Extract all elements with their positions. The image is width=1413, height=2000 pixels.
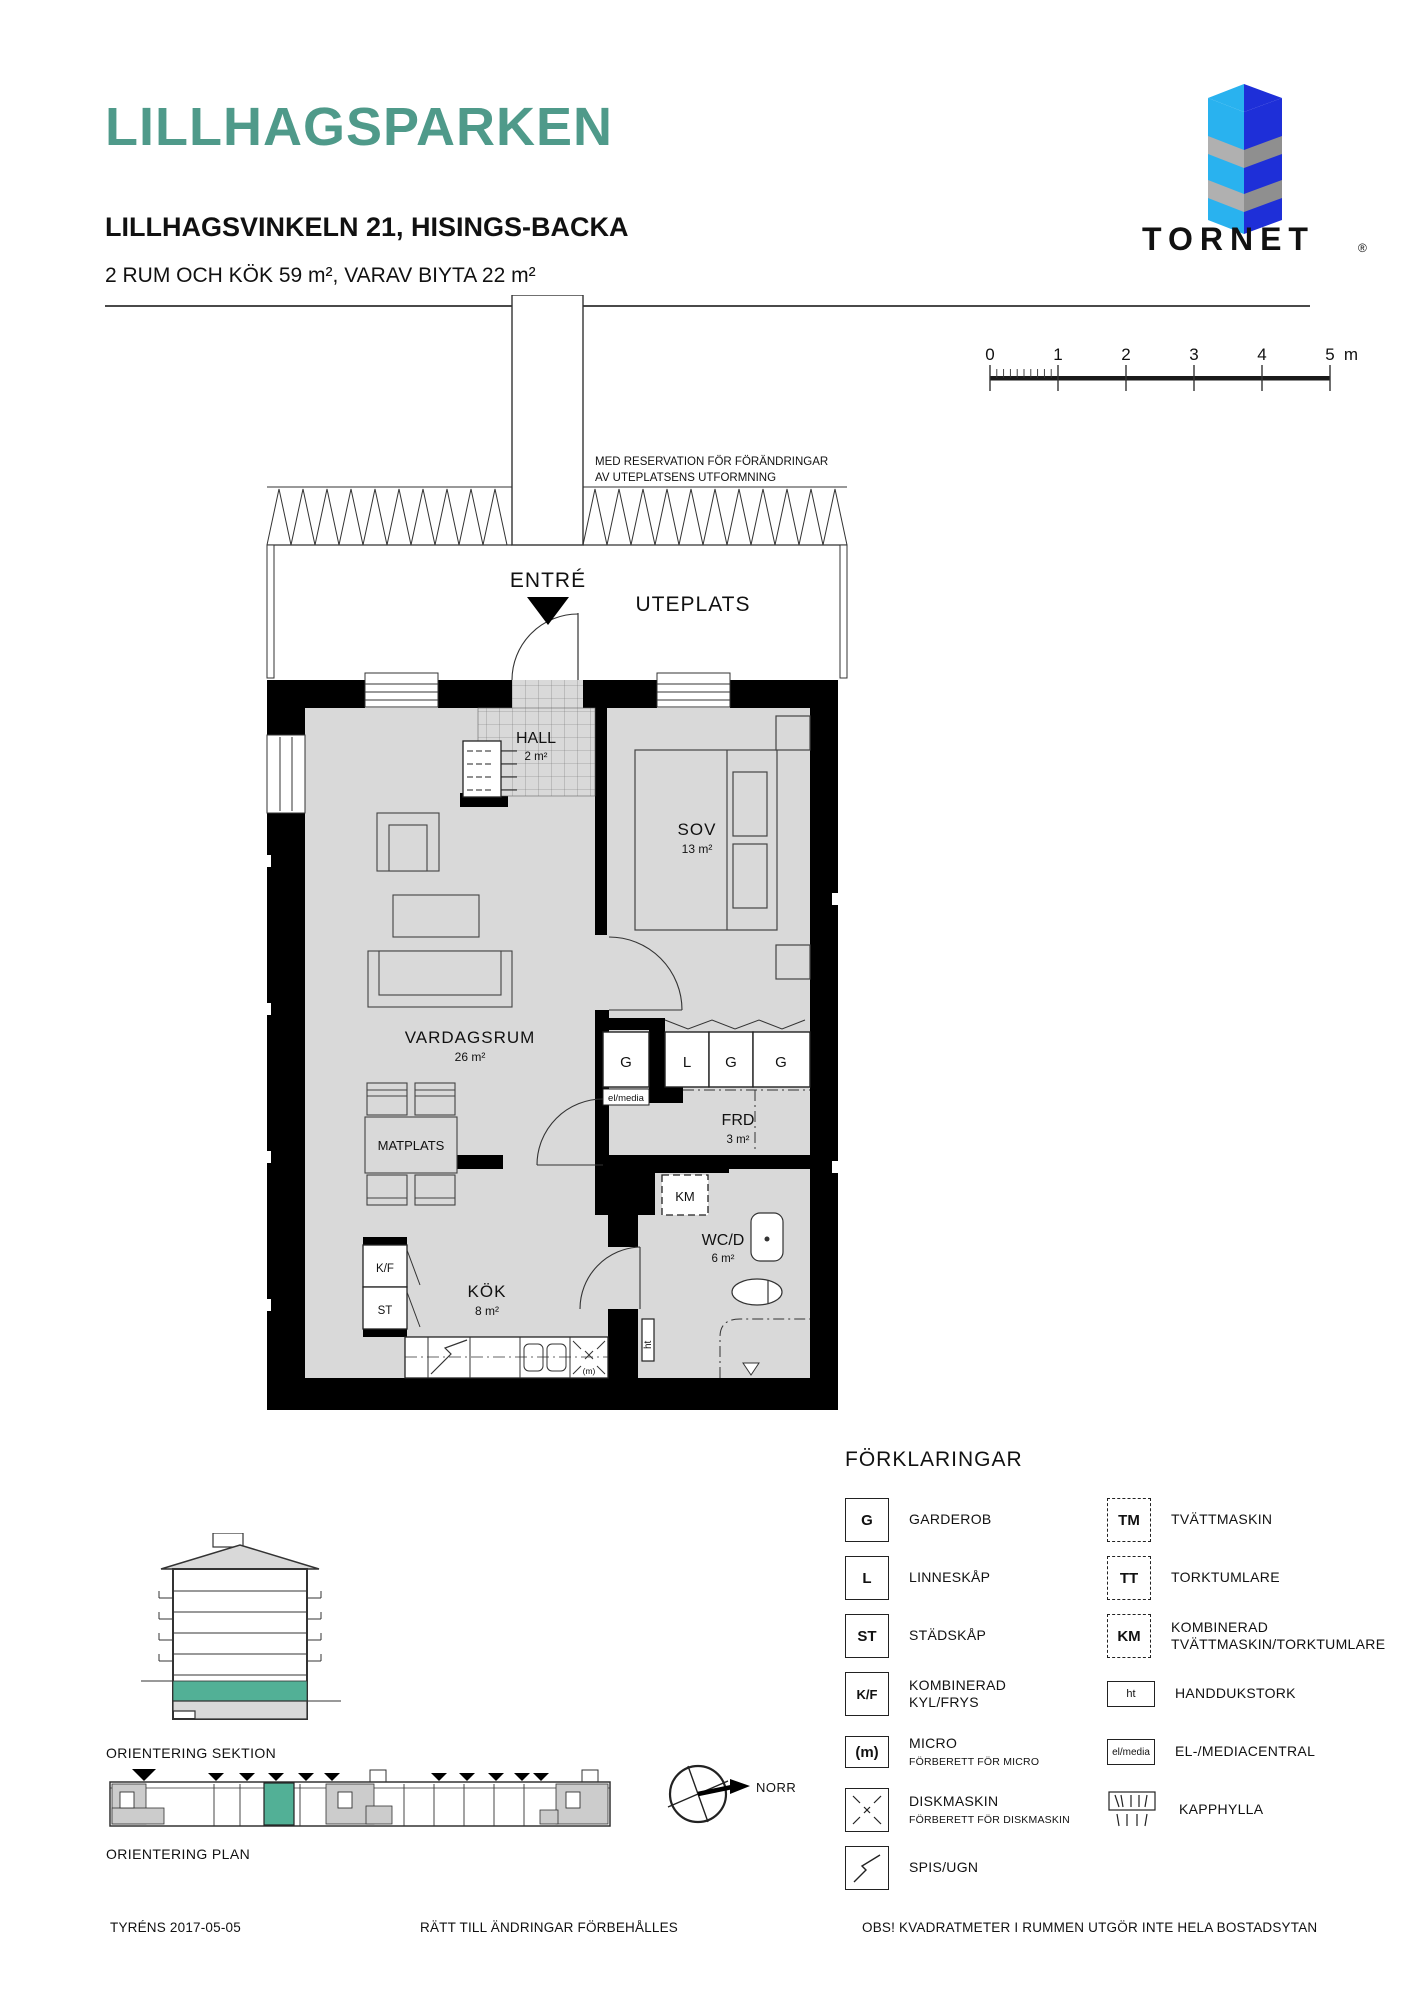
svg-text:4: 4 [1257, 345, 1266, 364]
apartment-summary: 2 RUM OCH KÖK 59 m², VARAV BIYTA 22 m² [105, 264, 536, 288]
uteplats-area [267, 295, 847, 680]
matplats-label: MATPLATS [378, 1138, 445, 1153]
chair [367, 1175, 407, 1205]
legend-right-column: TM TVÄTTMASKIN TT TORKTUMLARE KM KOMBINE… [1107, 1498, 1343, 1890]
handdukstork-symbol: ht [1107, 1681, 1155, 1707]
chair [415, 1175, 455, 1205]
reservation-note-line2: AV UTEPLATSENS UTFORMNING [595, 472, 776, 484]
entre-arrow-icon [527, 597, 569, 625]
vardagsrum-label: VARDAGSRUM [405, 1028, 536, 1047]
scale-tick-labels: 0 1 2 3 4 5 m [985, 345, 1358, 364]
legend-left-column: G GARDEROB L LINNESKÅP ST STÄDSKÅP K/F K… [845, 1498, 1081, 1890]
legend-item-kapphylla: KAPPHYLLA [1107, 1788, 1343, 1832]
registered-mark: ® [1358, 241, 1367, 254]
hall-label: HALL [516, 730, 556, 747]
footer-note: OBS! KVADRATMETER I RUMMEN UTGÖR INTE HE… [862, 1920, 1317, 1935]
window-vardagsrum-left [267, 735, 305, 813]
svg-text:0: 0 [985, 345, 994, 364]
bedside-table [776, 945, 810, 979]
orientation-plan-diagram [104, 1768, 624, 1834]
torktumlare-symbol: TT [1107, 1556, 1151, 1600]
hedge-right [583, 489, 847, 545]
sink-icon [751, 1213, 783, 1261]
legend-item-garderob: G GARDEROB [845, 1498, 1081, 1542]
highlighted-apartment [264, 1783, 294, 1825]
wcd-area: 6 m² [712, 1253, 735, 1265]
garderob-label: G [775, 1054, 787, 1071]
north-label: NORR [756, 1780, 796, 1795]
scale-unit: m [1344, 345, 1358, 364]
frd-area: 3 m² [727, 1134, 750, 1146]
legend-item-spis: SPIS/UGN [845, 1846, 1081, 1890]
sink-basin [547, 1344, 566, 1371]
legend: FÖRKLARINGAR G GARDEROB L LINNESKÅP ST S… [845, 1448, 1345, 1890]
km-appliance: KM [662, 1175, 708, 1215]
diskmaskin-icon [845, 1788, 889, 1832]
elmedia-symbol: el/media [1107, 1739, 1155, 1765]
legend-item-torktumlare: TT TORKTUMLARE [1107, 1556, 1343, 1600]
yard-fence-right [840, 545, 847, 678]
footer-disclaimer: RÄTT TILL ÄNDRINGAR FÖRBEHÅLLES [420, 1920, 678, 1935]
floor-plan: MED RESERVATION FÖR FÖRÄNDRINGAR AV UTEP… [265, 295, 855, 1420]
svg-text:2: 2 [1121, 345, 1130, 364]
legend-item-tvattmaskin: TM TVÄTTMASKIN [1107, 1498, 1343, 1542]
svg-text:3: 3 [1189, 345, 1198, 364]
ht-label: ht [643, 1340, 654, 1349]
uteplats-label: UTEPLATS [636, 593, 751, 616]
km-label: KM [675, 1189, 695, 1204]
legend-item-handdukstork: ht HANDDUKSTORK [1107, 1672, 1343, 1716]
kombimaskin-symbol: KM [1107, 1614, 1151, 1658]
legend-item-kombimaskin: KM KOMBINERAD TVÄTTMASKIN/TORKTUMLARE [1107, 1614, 1343, 1658]
north-arrow: NORR [660, 1752, 840, 1838]
coffee-table [393, 895, 479, 937]
legend-title: FÖRKLARINGAR [845, 1448, 1345, 1472]
hedge-left [267, 489, 507, 545]
kok-label: KÖK [468, 1282, 507, 1301]
entre-label: ENTRÉ [510, 569, 586, 592]
window-vardagsrum-top [365, 673, 438, 707]
orientation-section-diagram [135, 1533, 345, 1729]
orientation-section-label: ORIENTERING SEKTION [106, 1745, 276, 1761]
linneskap-label: L [683, 1054, 691, 1071]
wcd-label: WC/D [702, 1232, 745, 1249]
bedside-table [776, 716, 810, 750]
entry-door-swing [512, 614, 578, 680]
tornet-wordmark: TORNET [1142, 221, 1315, 254]
legend-item-elmedia: el/media EL-/MEDIACENTRAL [1107, 1730, 1343, 1774]
north-arrowhead [730, 1779, 750, 1794]
tornet-logo: TORNET ® [1140, 84, 1375, 254]
svg-text:1: 1 [1053, 345, 1062, 364]
kylfrys-symbol: K/F [845, 1672, 889, 1716]
kf-label: K/F [376, 1263, 394, 1275]
sov-label: SOV [678, 820, 717, 839]
footer-date: TYRÉNS 2017-05-05 [110, 1920, 241, 1935]
sink-basin [524, 1344, 543, 1371]
handdukstork [642, 1319, 654, 1361]
elmedia-label: el/media [608, 1093, 645, 1104]
micro-label: (m) [583, 1366, 596, 1376]
hall-area: 2 m² [525, 751, 548, 763]
chair [367, 1083, 407, 1115]
frd-label: FRD [722, 1112, 755, 1129]
chair [415, 1083, 455, 1115]
yard-fence-left [267, 545, 274, 678]
vardagsrum-area: 26 m² [455, 1050, 486, 1064]
scale-bar: 0 1 2 3 4 5 m [975, 340, 1365, 400]
legend-item-stadskap: ST STÄDSKÅP [845, 1614, 1081, 1658]
highlighted-floor [173, 1681, 307, 1701]
tvattmaskin-symbol: TM [1107, 1498, 1151, 1542]
tornet-tower-icon [1208, 84, 1282, 234]
kapphylla-icon [1107, 1790, 1159, 1830]
garderob-label: G [725, 1054, 737, 1071]
st-label: ST [378, 1305, 393, 1317]
spis-icon [845, 1846, 889, 1890]
linneskap-symbol: L [845, 1556, 889, 1600]
reservation-note-line1: MED RESERVATION FÖR FÖRÄNDRINGAR [595, 456, 828, 468]
garderob-label: G [620, 1054, 632, 1071]
window-sov-top [657, 673, 730, 707]
page-title: LILLHAGSPARKEN [105, 96, 613, 158]
stadskap-symbol: ST [845, 1614, 889, 1658]
micro-symbol: (m) [845, 1736, 889, 1768]
legend-item-micro: (m) MICRO FÖRBERETT FÖR MICRO [845, 1730, 1081, 1774]
toilet-icon [732, 1279, 782, 1305]
garderob-symbol: G [845, 1498, 889, 1542]
legend-item-kylfrys: K/F KOMBINERAD KYL/FRYS [845, 1672, 1081, 1716]
svg-text:5: 5 [1325, 345, 1334, 364]
floorplan-page: { "header": { "title": "LILLHAGSPARKEN",… [0, 0, 1413, 2000]
sov-area: 13 m² [682, 842, 713, 856]
legend-item-linneskap: L LINNESKÅP [845, 1556, 1081, 1600]
legend-item-diskmaskin: DISKMASKIN FÖRBERETT FÖR DISKMASKIN [845, 1788, 1081, 1832]
address-subtitle: LILLHAGSVINKELN 21, HISINGS-BACKA [105, 212, 629, 243]
entry-walkway [512, 295, 583, 545]
kitchen-counter: (m) [405, 1337, 608, 1378]
kok-area: 8 m² [475, 1304, 499, 1318]
orientation-plan-label: ORIENTERING PLAN [106, 1846, 250, 1862]
